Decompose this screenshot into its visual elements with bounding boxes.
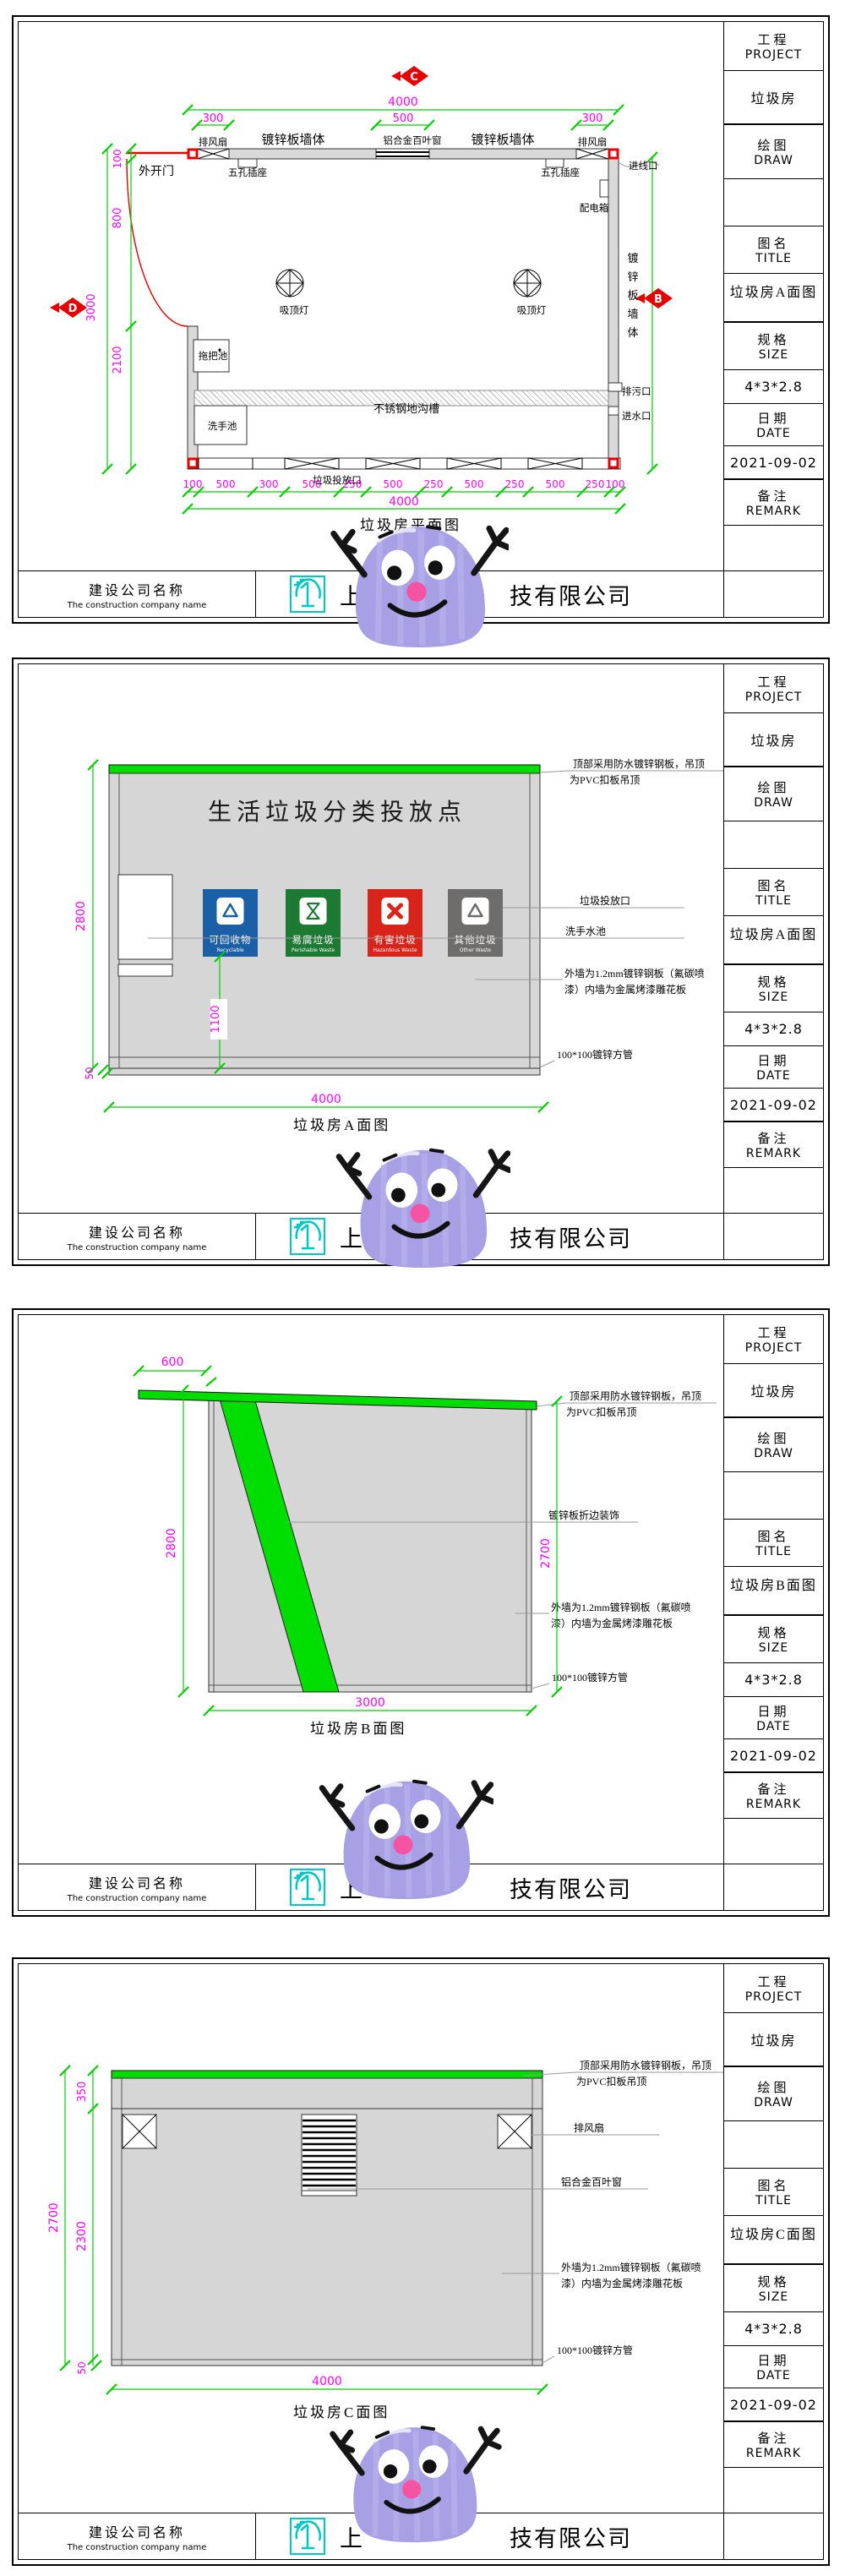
svg-text:4000: 4000: [312, 2375, 342, 2388]
sink-front: [118, 875, 172, 959]
svg-text:Hazardous Waste: Hazardous Waste: [373, 947, 417, 953]
svg-text:2700: 2700: [539, 1538, 553, 1569]
svg-text:镀锌板墙体: 镀锌板墙体: [261, 132, 324, 147]
svg-text:拖把池: 拖把池: [199, 350, 228, 362]
date-label-en: DATE: [756, 427, 790, 440]
date-label: 日期: [757, 1051, 789, 1069]
svg-text:镀锌板折边装饰: 镀锌板折边装饰: [548, 1509, 619, 1521]
svg-text:50: 50: [76, 2361, 88, 2374]
footer-empty-cell: [723, 1864, 823, 1910]
name-label: 图名: [757, 2176, 789, 2194]
size-label-en: SIZE: [759, 1641, 788, 1655]
svg-text:顶部采用防水镀锌钢板，吊顶: 顶部采用防水镀锌钢板，吊顶: [570, 1389, 701, 1402]
svg-text:五孔插座: 五孔插座: [541, 166, 580, 178]
svg-text:镀: 镀: [627, 252, 638, 265]
project-label: 工程: [757, 30, 789, 48]
sheet-title: 垃圾房A面图: [730, 281, 818, 301]
mascot-sticker: [330, 506, 509, 650]
company-label-en: The construction company name: [68, 2543, 207, 2552]
exhaust-fan-right: [498, 2115, 532, 2148]
svg-text:500: 500: [216, 478, 236, 490]
date-label: 日期: [757, 2351, 789, 2369]
svg-text:为PVC扣板吊顶: 为PVC扣板吊顶: [566, 1406, 636, 1418]
view-marker-top: C: [391, 66, 428, 86]
bin-other: 其他垃圾 Other Waste: [448, 889, 503, 957]
name-label: 图名: [757, 876, 789, 894]
project-value: 垃圾房: [750, 87, 796, 107]
svg-text:500: 500: [393, 112, 414, 125]
svg-text:350: 350: [76, 2082, 89, 2103]
remark-label-en: REMARK: [746, 505, 801, 518]
date-label: 日期: [757, 1702, 789, 1720]
svg-text:排污口: 排污口: [622, 385, 651, 397]
svg-text:吸顶灯: 吸顶灯: [517, 305, 547, 316]
remark-label: 备注: [757, 1780, 789, 1798]
svg-text:600: 600: [161, 1356, 184, 1369]
size-value: 4*3*2.8: [744, 1021, 803, 1037]
svg-text:漆）内墙为金属烤漆雕花板: 漆）内墙为金属烤漆雕花板: [561, 2277, 683, 2289]
svg-text:2700: 2700: [47, 2202, 61, 2233]
svg-text:板: 板: [627, 289, 638, 302]
company-label-cell: 建设公司名称 The construction company name: [19, 1864, 256, 1910]
date-value: 2021-09-02: [730, 1748, 817, 1764]
project-label-en: PROJECT: [745, 690, 803, 704]
svg-text:3000: 3000: [355, 1696, 385, 1710]
size-value: 4*3*2.8: [744, 379, 803, 395]
svg-text:顶部采用防水镀锌钢板，吊顶: 顶部采用防水镀锌钢板，吊顶: [573, 757, 705, 770]
svg-text:洗手池: 洗手池: [208, 420, 237, 432]
company-name-end: 技有限公司: [510, 1871, 632, 1904]
title-block: 工程PROJECT 垃圾房 绘图DRAW 图名TITLE 垃圾房B面图 规格SI…: [723, 1315, 823, 1864]
drawing-caption: 垃圾房B面图: [310, 1721, 406, 1737]
svg-text:排风扇: 排风扇: [578, 136, 608, 148]
project-label-en: PROJECT: [745, 48, 803, 62]
company-label-en: The construction company name: [68, 1243, 207, 1253]
company-label-cn: 建设公司名称: [89, 1221, 185, 1242]
svg-text:铝合金百叶窗: 铝合金百叶窗: [384, 134, 442, 146]
door-swing: [127, 153, 188, 326]
svg-text:100*100镀锌方管: 100*100镀锌方管: [557, 1048, 633, 1061]
title-block: 工程PROJECT 垃圾房 绘图DRAW 图名TITLE 垃圾房A面图 规格SI…: [723, 664, 823, 1214]
bin-recyclable: 可回收物 Recyclable: [203, 889, 258, 957]
company-logo-icon: [289, 575, 328, 614]
size-label-en: SIZE: [759, 2290, 788, 2304]
size-label: 规格: [757, 1624, 789, 1641]
name-label-en: TITLE: [755, 2194, 792, 2208]
draw-label: 绘图: [757, 778, 789, 796]
remark-label: 备注: [757, 1129, 789, 1147]
project-label: 工程: [757, 1973, 789, 1990]
ceiling-lamp-left: [276, 270, 303, 297]
svg-text:顶部采用防水镀锌钢板，吊顶: 顶部采用防水镀锌钢板，吊顶: [580, 2059, 711, 2071]
project-label-en: PROJECT: [745, 1341, 803, 1355]
size-label-en: SIZE: [759, 348, 788, 362]
svg-text:Perishable Waste: Perishable Waste: [292, 947, 335, 953]
name-label-en: TITLE: [755, 894, 792, 908]
ceiling-lamp-right: [514, 270, 541, 297]
company-label-cn: 建设公司名称: [89, 579, 185, 599]
bin-perishable: 易腐垃圾 Perishable Waste: [286, 889, 341, 957]
draw-label: 绘图: [757, 136, 789, 154]
svg-text:铝合金百叶窗: 铝合金百叶窗: [561, 2175, 622, 2188]
svg-text:进水口: 进水口: [622, 411, 651, 422]
svg-text:250: 250: [505, 478, 525, 490]
svg-text:五孔插座: 五孔插座: [228, 166, 267, 178]
company-label-cell: 建设公司名称 The construction company name: [19, 571, 256, 617]
svg-text:C: C: [410, 71, 418, 84]
size-value: 4*3*2.8: [744, 1672, 803, 1688]
svg-text:300: 300: [582, 112, 603, 125]
svg-text:可回收物: 可回收物: [210, 934, 252, 946]
size-label: 规格: [757, 2273, 789, 2290]
remark-label-en: REMARK: [746, 2447, 801, 2460]
svg-text:漆）内墙为金属烤漆雕花板: 漆）内墙为金属烤漆雕花板: [551, 1617, 673, 1629]
svg-text:垃圾投放口: 垃圾投放口: [580, 894, 630, 907]
svg-text:锌: 锌: [627, 270, 638, 283]
date-label-en: DATE: [756, 2369, 790, 2382]
svg-text:Other Waste: Other Waste: [460, 947, 492, 953]
draw-label-en: DRAW: [754, 154, 793, 167]
remark-label: 备注: [757, 487, 789, 505]
svg-text:Recyclable: Recyclable: [216, 947, 244, 953]
svg-text:4000: 4000: [311, 1093, 341, 1106]
sheet-title: 垃圾房C面图: [730, 2223, 817, 2243]
dimension-lines: [102, 105, 657, 514]
svg-text:100: 100: [606, 478, 625, 490]
sheet-title: 垃圾房B面图: [730, 1574, 817, 1594]
svg-text:50: 50: [84, 1067, 95, 1079]
building-c: [112, 2071, 542, 2366]
project-value: 垃圾房: [750, 729, 796, 750]
svg-text:漆）内墙为金属烤漆雕花板: 漆）内墙为金属烤漆雕花板: [564, 983, 686, 996]
size-label: 规格: [757, 973, 789, 991]
svg-text:外墙为1.2mm镀锌钢板（氟碳喷: 外墙为1.2mm镀锌钢板（氟碳喷: [564, 968, 705, 980]
footer-empty-cell: [723, 571, 823, 617]
svg-text:吸顶灯: 吸顶灯: [280, 305, 309, 316]
svg-text:外开门: 外开门: [139, 165, 174, 178]
svg-text:其他垃圾: 其他垃圾: [455, 934, 497, 946]
company-name-end: 技有限公司: [510, 578, 632, 611]
svg-text:100: 100: [183, 478, 203, 490]
svg-text:垃圾投放口: 垃圾投放口: [313, 474, 362, 486]
plan-drawing: C D B 4000 300 500 300 100 800 2100 3000…: [19, 22, 724, 571]
svg-text:外墙为1.2mm镀锌钢板（氟碳喷: 外墙为1.2mm镀锌钢板（氟碳喷: [551, 1602, 691, 1613]
svg-text:2100: 2100: [112, 346, 124, 374]
mascot-sticker: [335, 1130, 510, 1270]
sheet-title: 垃圾房A面图: [730, 923, 818, 943]
view-marker-right: B: [635, 288, 673, 308]
company-label-cell: 建设公司名称 The construction company name: [19, 1214, 256, 1259]
svg-text:进线口: 进线口: [629, 160, 658, 172]
name-label-en: TITLE: [755, 252, 792, 265]
svg-text:4000: 4000: [388, 96, 418, 109]
svg-text:外墙为1.2mm镀锌钢板（氟碳喷: 外墙为1.2mm镀锌钢板（氟碳喷: [561, 2262, 701, 2273]
name-label: 图名: [757, 234, 789, 252]
svg-text:100*100镀锌方管: 100*100镀锌方管: [552, 1671, 628, 1684]
mascot-sticker: [318, 1761, 493, 1902]
date-label-en: DATE: [756, 1069, 790, 1083]
svg-text:排风扇: 排风扇: [574, 2121, 604, 2134]
svg-text:250: 250: [424, 478, 444, 490]
company-label-cn: 建设公司名称: [89, 1872, 185, 1892]
title-block: 工程PROJECT 垃圾房 绘图DRAW 图名TITLE 垃圾房C面图 规格SI…: [723, 1964, 823, 2513]
mascot-sticker: [326, 2408, 502, 2545]
corner-posts: [188, 150, 618, 467]
project-label: 工程: [757, 673, 789, 690]
plan-walls: [188, 149, 620, 469]
draw-label: 绘图: [757, 2078, 789, 2096]
project-label-en: PROJECT: [745, 1990, 803, 2004]
name-label: 图名: [757, 1527, 789, 1545]
date-label-en: DATE: [756, 1720, 790, 1733]
project-value: 垃圾房: [750, 1380, 796, 1400]
svg-text:体: 体: [627, 326, 638, 339]
svg-text:1100: 1100: [210, 1005, 222, 1033]
svg-text:500: 500: [384, 478, 403, 490]
building-b: [139, 1390, 537, 1692]
company-label-en: The construction company name: [68, 1894, 207, 1903]
svg-text:易腐垃圾: 易腐垃圾: [292, 934, 335, 946]
svg-text:300: 300: [259, 478, 279, 490]
company-label-cn: 建设公司名称: [89, 2521, 185, 2541]
date-label: 日期: [757, 409, 789, 427]
project-label: 工程: [757, 1323, 789, 1341]
date-value: 2021-09-02: [730, 1097, 817, 1113]
draw-label-en: DRAW: [754, 796, 793, 810]
svg-text:500: 500: [465, 478, 484, 490]
draw-label: 绘图: [757, 1429, 789, 1447]
svg-text:2800: 2800: [165, 1528, 178, 1558]
svg-text:墙: 墙: [627, 308, 638, 320]
socket-right: [546, 159, 564, 167]
sign-title: 生活垃圾分类投放点: [208, 799, 466, 826]
plan-labels: 外开门 排风扇 排风扇 镀锌板墙体 镀锌板墙体 铝合金百叶窗 五孔插座 五孔插座…: [139, 132, 659, 533]
svg-text:不锈钢地沟槽: 不锈钢地沟槽: [373, 402, 439, 415]
water-inlet-box: [608, 407, 619, 415]
remark-label-en: REMARK: [746, 1798, 801, 1811]
svg-text:有害垃圾: 有害垃圾: [374, 934, 417, 946]
svg-text:100*100镀锌方管: 100*100镀锌方管: [557, 2344, 633, 2356]
project-value: 垃圾房: [750, 2029, 796, 2049]
company-label-en: The construction company name: [68, 601, 207, 610]
svg-text:300: 300: [203, 112, 224, 125]
company-name-end: 技有限公司: [510, 2520, 632, 2553]
exhaust-fan-left: [123, 2115, 156, 2148]
svg-text:D: D: [68, 303, 78, 315]
svg-text:B: B: [654, 293, 662, 306]
company-label-cell: 建设公司名称 The construction company name: [19, 2513, 256, 2559]
svg-text:3000: 3000: [85, 293, 98, 321]
svg-text:500: 500: [546, 478, 565, 490]
title-block: 工程PROJECT 垃圾房 绘图DRAW 图名TITLE 垃圾房A面图 规格SI…: [723, 22, 823, 571]
date-value: 2021-09-02: [730, 2397, 817, 2413]
sewage-outlet: [608, 383, 622, 391]
svg-text:2800: 2800: [74, 901, 88, 931]
date-value: 2021-09-02: [730, 455, 817, 471]
svg-text:排风扇: 排风扇: [199, 136, 228, 148]
view-marker-left: D: [50, 297, 87, 318]
company-logo-icon: [289, 1217, 328, 1256]
company-logo-icon: [289, 2517, 328, 2556]
svg-text:配电箱: 配电箱: [580, 202, 609, 214]
draw-label-en: DRAW: [754, 2096, 793, 2109]
name-label-en: TITLE: [755, 1545, 792, 1558]
svg-text:250: 250: [586, 478, 605, 490]
bin-hazardous: 有害垃圾 Hazardous Waste: [368, 889, 422, 957]
louver-window: [302, 2115, 357, 2196]
size-value: 4*3*2.8: [744, 2321, 803, 2337]
remark-label: 备注: [757, 2429, 789, 2447]
draw-label-en: DRAW: [754, 1447, 793, 1460]
svg-text:为PVC扣板吊顶: 为PVC扣板吊顶: [576, 2076, 646, 2088]
svg-text:洗手水池: 洗手水池: [565, 925, 606, 937]
svg-text:镀锌板墙体: 镀锌板墙体: [471, 132, 534, 147]
distribution-box: [600, 180, 608, 197]
svg-text:800: 800: [112, 208, 124, 229]
socket-left: [238, 159, 257, 167]
size-label-en: SIZE: [759, 991, 788, 1004]
size-label: 规格: [757, 330, 789, 348]
footer-empty-cell: [723, 2513, 823, 2559]
company-name-end: 技有限公司: [510, 1220, 632, 1253]
svg-text:2300: 2300: [75, 2221, 89, 2251]
footer-empty-cell: [723, 1214, 823, 1259]
svg-text:100: 100: [112, 150, 123, 169]
remark-label-en: REMARK: [746, 1147, 801, 1160]
svg-text:为PVC扣板吊顶: 为PVC扣板吊顶: [570, 774, 640, 786]
